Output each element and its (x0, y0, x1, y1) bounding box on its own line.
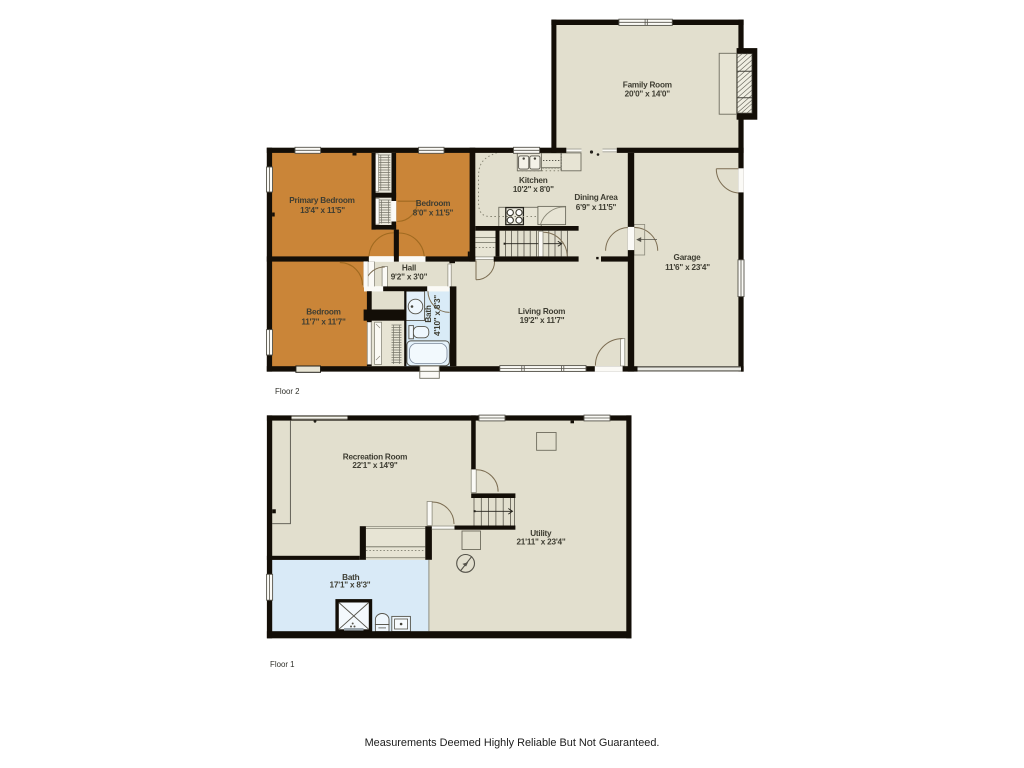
svg-text:Bedroom: Bedroom (306, 307, 340, 316)
svg-text:11'6" x 23'4": 11'6" x 23'4" (665, 263, 710, 272)
svg-text:Floor 1: Floor 1 (270, 660, 295, 669)
svg-text:Living Room: Living Room (518, 307, 565, 316)
svg-text:6'9" x 11'5": 6'9" x 11'5" (576, 203, 617, 212)
svg-text:4'10" x 8'3": 4'10" x 8'3" (433, 295, 442, 336)
svg-text:Bath: Bath (424, 305, 433, 323)
svg-text:Family Room: Family Room (623, 81, 672, 90)
svg-text:17'1" x 8'3": 17'1" x 8'3" (330, 581, 371, 590)
svg-text:11'7" x 11'7": 11'7" x 11'7" (301, 318, 346, 327)
svg-text:Dining Area: Dining Area (574, 193, 618, 202)
svg-text:10'2" x 8'0": 10'2" x 8'0" (513, 185, 554, 194)
svg-text:9'2" x 3'0": 9'2" x 3'0" (391, 273, 428, 282)
svg-text:22'1" x 14'9": 22'1" x 14'9" (352, 461, 398, 470)
svg-text:Kitchen: Kitchen (519, 176, 548, 185)
svg-text:20'0" x 14'0": 20'0" x 14'0" (625, 90, 671, 99)
svg-text:Garage: Garage (674, 253, 702, 262)
svg-text:Hall: Hall (402, 264, 416, 273)
svg-text:Bedroom: Bedroom (416, 199, 450, 208)
svg-text:21'11" x 23'4": 21'11" x 23'4" (516, 538, 565, 547)
svg-text:13'4" x 11'5": 13'4" x 11'5" (300, 206, 345, 215)
svg-text:Primary Bedroom: Primary Bedroom (289, 196, 354, 205)
svg-text:8'0" x 11'5": 8'0" x 11'5" (413, 209, 454, 218)
svg-text:Floor 2: Floor 2 (275, 387, 300, 396)
svg-text:Measurements Deemed Highly Rel: Measurements Deemed Highly Reliable But … (365, 737, 660, 749)
svg-text:19'2" x 11'7": 19'2" x 11'7" (520, 316, 565, 325)
